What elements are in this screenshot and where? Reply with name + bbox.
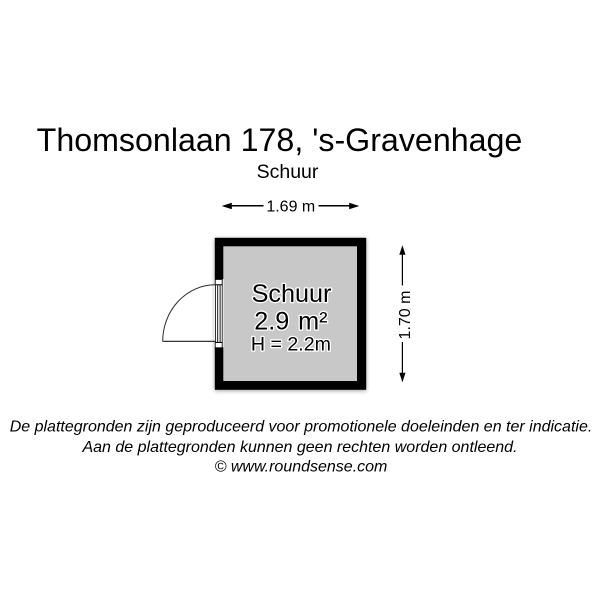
svg-text:De plattegronden zijn geproduc: De plattegronden zijn geproduceerd voor …	[10, 418, 593, 435]
svg-text:1.70 m: 1.70 m	[397, 291, 414, 340]
svg-text:1.69 m: 1.69 m	[266, 199, 315, 216]
svg-text:© www.roundsense.com: © www.roundsense.com	[215, 459, 388, 476]
svg-text:2.9 m²: 2.9 m²	[254, 308, 327, 336]
svg-text:Schuur: Schuur	[252, 280, 332, 308]
svg-text:Schuur: Schuur	[257, 161, 319, 183]
svg-text:H = 2.2m: H = 2.2m	[251, 334, 331, 356]
svg-text:Thomsonlaan 178, 's-Gravenhage: Thomsonlaan 178, 's-Gravenhage	[37, 122, 523, 158]
svg-text:Aan de plattegronden kunnen ge: Aan de plattegronden kunnen geen rechten…	[81, 439, 517, 456]
